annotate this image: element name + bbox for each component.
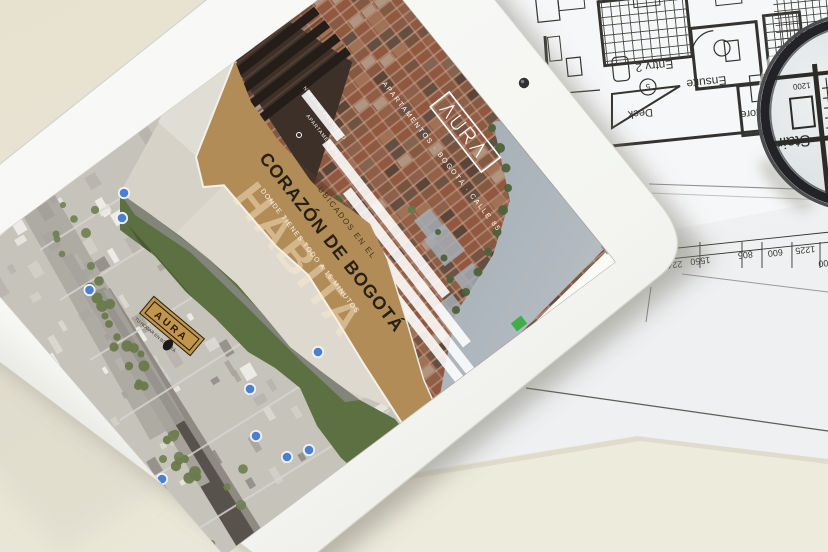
- svg-text:1200: 1200: [792, 81, 811, 92]
- svg-text:Stair: Stair: [776, 131, 811, 151]
